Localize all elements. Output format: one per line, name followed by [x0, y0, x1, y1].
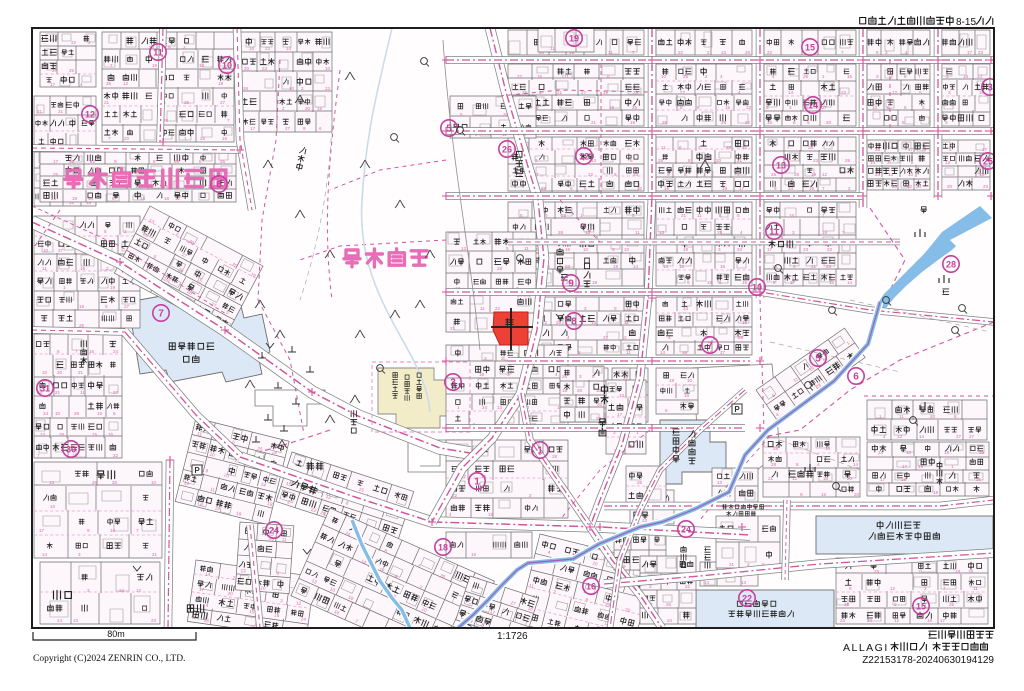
svg-text:12: 12 [897, 434, 903, 439]
svg-text:19: 19 [707, 280, 713, 285]
svg-text:3: 3 [579, 374, 582, 379]
svg-text:21: 21 [78, 370, 84, 375]
svg-text:24: 24 [681, 524, 691, 534]
svg-text:16: 16 [789, 213, 795, 218]
svg-text:20: 20 [597, 402, 603, 407]
svg-text:25: 25 [53, 172, 59, 177]
svg-text:4: 4 [883, 434, 886, 439]
svg-text:1: 1 [457, 405, 460, 410]
svg-text:26: 26 [562, 374, 568, 379]
svg-text:19: 19 [488, 512, 494, 517]
svg-text:21: 21 [737, 158, 743, 163]
svg-text:9: 9 [568, 278, 574, 289]
svg-text:3: 3 [507, 372, 510, 377]
svg-text:16: 16 [249, 46, 255, 51]
svg-text:1: 1 [63, 285, 66, 290]
svg-text:14: 14 [704, 580, 710, 585]
svg-text:22: 22 [588, 172, 594, 177]
svg-text:25: 25 [874, 569, 880, 574]
svg-text:24: 24 [878, 450, 884, 455]
svg-text:8: 8 [592, 374, 595, 379]
svg-text:10: 10 [43, 248, 49, 253]
svg-text:22: 22 [113, 453, 119, 458]
svg-text:15: 15 [725, 105, 731, 110]
svg-text:3: 3 [183, 45, 186, 50]
svg-text:8: 8 [614, 172, 617, 177]
svg-text:26: 26 [59, 432, 65, 437]
svg-text:13: 13 [49, 480, 55, 485]
svg-text:8: 8 [904, 74, 907, 79]
svg-text:9: 9 [667, 172, 670, 177]
svg-text:9: 9 [774, 186, 777, 191]
svg-text:2: 2 [705, 74, 708, 79]
svg-text:10: 10 [289, 86, 295, 91]
svg-text:80m: 80m [107, 629, 125, 639]
svg-text:3: 3 [87, 588, 90, 593]
svg-text:14: 14 [870, 160, 876, 165]
svg-text:28: 28 [721, 120, 727, 125]
svg-text:13: 13 [741, 580, 747, 585]
svg-text:16: 16 [976, 477, 982, 482]
svg-text:17: 17 [940, 618, 946, 623]
svg-text:6: 6 [904, 105, 907, 110]
svg-text:13: 13 [199, 63, 205, 68]
svg-text:28: 28 [174, 159, 180, 164]
svg-text:1:1726: 1:1726 [497, 631, 528, 642]
svg-text:17: 17 [739, 186, 745, 191]
svg-text:5: 5 [446, 123, 452, 134]
svg-text:3: 3 [792, 230, 795, 235]
svg-text:26: 26 [243, 86, 249, 91]
svg-text:15: 15 [97, 411, 103, 416]
svg-text:16: 16 [682, 350, 688, 355]
svg-text:21: 21 [104, 100, 110, 105]
svg-text:14: 14 [57, 618, 63, 623]
svg-text:14: 14 [788, 90, 794, 95]
svg-text:2: 2 [747, 562, 750, 567]
svg-text:6: 6 [607, 74, 610, 79]
svg-text:12: 12 [579, 151, 589, 161]
svg-text:10: 10 [260, 586, 266, 591]
svg-text:27: 27 [113, 390, 119, 395]
svg-text:15: 15 [979, 450, 985, 455]
svg-text:22: 22 [742, 593, 752, 603]
svg-text:24: 24 [840, 618, 846, 623]
svg-text:26: 26 [803, 74, 809, 79]
svg-text:6: 6 [539, 90, 542, 95]
svg-text:11: 11 [480, 306, 485, 311]
svg-text:P: P [194, 466, 200, 475]
svg-text:28: 28 [773, 446, 779, 451]
svg-text:17: 17 [908, 147, 914, 152]
svg-text:16: 16 [720, 264, 726, 269]
svg-text:1: 1 [822, 213, 825, 218]
svg-text:24: 24 [683, 306, 689, 311]
svg-text:19: 19 [955, 569, 961, 574]
svg-text:19: 19 [811, 172, 817, 177]
svg-text:1: 1 [703, 172, 706, 177]
svg-text:7: 7 [108, 136, 111, 141]
svg-text:23: 23 [561, 213, 567, 218]
svg-text:5: 5 [919, 90, 922, 95]
svg-text:10: 10 [325, 66, 331, 71]
svg-text:10: 10 [55, 411, 61, 416]
svg-text:19: 19 [918, 464, 924, 469]
svg-text:28: 28 [844, 602, 850, 607]
svg-text:3: 3 [484, 356, 487, 361]
svg-text:17: 17 [617, 412, 623, 417]
svg-text:4: 4 [567, 335, 570, 340]
svg-text:25: 25 [983, 156, 993, 166]
svg-text:24: 24 [788, 186, 794, 191]
svg-text:18: 18 [80, 266, 86, 271]
svg-text:23: 23 [983, 184, 989, 189]
svg-text:23: 23 [875, 172, 881, 177]
svg-text:25: 25 [220, 159, 226, 164]
svg-text:28: 28 [552, 454, 558, 459]
svg-text:6: 6 [773, 280, 776, 285]
svg-text:22: 22 [685, 584, 691, 589]
svg-text:10: 10 [661, 74, 667, 79]
svg-text:21: 21 [55, 390, 61, 395]
svg-text:2: 2 [922, 105, 925, 110]
svg-text:18: 18 [944, 450, 950, 455]
svg-text:17: 17 [53, 159, 59, 164]
svg-text:28: 28 [658, 158, 664, 163]
svg-text:8: 8 [57, 349, 60, 354]
svg-text:28: 28 [92, 480, 98, 485]
svg-text:25: 25 [633, 172, 639, 177]
svg-text:15: 15 [679, 264, 685, 269]
svg-text:22: 22 [637, 186, 643, 191]
svg-text:13: 13 [776, 160, 786, 170]
svg-text:6: 6 [665, 408, 668, 413]
svg-text:27: 27 [124, 304, 130, 309]
svg-text:13: 13 [945, 160, 951, 165]
svg-text:22: 22 [495, 306, 501, 311]
svg-text:24: 24 [667, 618, 673, 623]
svg-text:22: 22 [71, 40, 77, 45]
svg-text:6: 6 [697, 105, 700, 110]
svg-text:Z22153178-20240630194129: Z22153178-20240630194129 [862, 655, 994, 666]
svg-text:14: 14 [888, 172, 894, 177]
svg-text:19: 19 [613, 264, 619, 269]
svg-text:16: 16 [927, 618, 933, 623]
svg-text:27: 27 [220, 100, 226, 105]
svg-text:20: 20 [854, 492, 860, 497]
svg-text:3: 3 [945, 120, 948, 125]
svg-text:15: 15 [317, 106, 323, 111]
svg-text:21: 21 [681, 213, 687, 218]
svg-text:3: 3 [78, 552, 81, 557]
svg-text:11: 11 [550, 46, 555, 51]
svg-text:2: 2 [282, 106, 285, 111]
svg-text:12: 12 [894, 618, 900, 623]
svg-text:16: 16 [968, 569, 974, 574]
svg-text:25: 25 [556, 320, 562, 325]
svg-text:25: 25 [106, 81, 112, 86]
svg-text:8: 8 [719, 213, 722, 218]
svg-text:15: 15 [821, 492, 827, 497]
svg-text:3: 3 [793, 264, 796, 269]
svg-text:1: 1 [474, 476, 480, 487]
svg-text:23: 23 [803, 247, 809, 252]
svg-text:10: 10 [222, 60, 232, 70]
svg-text:14: 14 [663, 264, 669, 269]
svg-text:9: 9 [153, 159, 156, 164]
svg-text:8: 8 [680, 105, 683, 110]
svg-text:18: 18 [683, 247, 689, 252]
svg-text:11: 11 [635, 230, 640, 235]
svg-text:3: 3 [948, 90, 951, 95]
svg-text:19: 19 [569, 33, 579, 43]
svg-text:8: 8 [545, 213, 548, 218]
svg-text:7: 7 [227, 118, 230, 123]
svg-text:3: 3 [876, 74, 879, 79]
svg-text:16: 16 [108, 432, 114, 437]
svg-text:28: 28 [946, 259, 956, 269]
svg-text:12: 12 [892, 90, 898, 95]
svg-text:10: 10 [583, 247, 589, 252]
svg-text:19: 19 [218, 81, 224, 86]
svg-text:1: 1 [537, 445, 543, 456]
svg-text:23: 23 [826, 264, 832, 269]
svg-text:16: 16 [537, 74, 543, 79]
svg-text:17: 17 [790, 280, 796, 285]
svg-text:4: 4 [905, 50, 908, 55]
svg-text:20: 20 [577, 388, 583, 393]
svg-text:22: 22 [90, 159, 96, 164]
svg-text:8: 8 [199, 159, 202, 164]
svg-text:19: 19 [809, 186, 815, 191]
svg-text:18: 18 [164, 196, 170, 201]
svg-text:8: 8 [793, 120, 796, 125]
svg-text:24: 24 [916, 184, 922, 189]
svg-text:28: 28 [726, 145, 732, 150]
svg-text:24: 24 [43, 411, 49, 416]
svg-text:16: 16 [630, 120, 636, 125]
svg-text:11: 11 [282, 537, 288, 542]
svg-text:24: 24 [51, 196, 57, 201]
svg-text:8: 8 [104, 229, 107, 234]
svg-text:25: 25 [522, 90, 528, 95]
svg-text:2: 2 [106, 266, 109, 271]
svg-text:25: 25 [633, 90, 639, 95]
svg-text:2: 2 [501, 356, 504, 361]
svg-text:12: 12 [907, 184, 913, 189]
svg-text:25: 25 [683, 74, 689, 79]
svg-text:14: 14 [853, 462, 859, 467]
svg-text:15: 15 [562, 388, 568, 393]
svg-text:25: 25 [632, 105, 638, 110]
svg-text:2: 2 [848, 186, 851, 191]
svg-text:26: 26 [666, 602, 672, 607]
svg-text:23: 23 [978, 50, 984, 55]
svg-text:10: 10 [752, 282, 762, 292]
svg-text:25: 25 [200, 136, 206, 141]
svg-text:P: P [734, 405, 740, 414]
svg-text:12: 12 [123, 81, 129, 86]
svg-text:23: 23 [325, 86, 331, 91]
svg-text:7: 7 [136, 528, 139, 533]
svg-text:10: 10 [619, 393, 625, 398]
svg-text:11: 11 [661, 145, 666, 150]
svg-text:11: 11 [769, 226, 779, 236]
svg-text:24: 24 [119, 588, 125, 593]
svg-text:7: 7 [842, 230, 845, 235]
svg-text:20: 20 [930, 414, 936, 419]
svg-text:15: 15 [767, 120, 773, 125]
svg-text:7: 7 [707, 340, 713, 351]
svg-text:21: 21 [591, 120, 597, 125]
svg-text:30: 30 [66, 444, 76, 454]
svg-text:2: 2 [88, 40, 91, 45]
svg-text:19: 19 [592, 280, 598, 285]
svg-text:12: 12 [175, 196, 181, 201]
svg-text:10: 10 [908, 172, 914, 177]
svg-text:5: 5 [815, 353, 821, 364]
svg-text:3: 3 [718, 247, 721, 252]
svg-text:16: 16 [825, 446, 831, 451]
svg-text:15: 15 [805, 42, 815, 52]
svg-text:4: 4 [740, 230, 743, 235]
svg-text:1: 1 [879, 414, 882, 419]
svg-text:14: 14 [660, 350, 666, 355]
svg-text:21: 21 [450, 326, 456, 331]
svg-text:26: 26 [502, 144, 512, 154]
svg-text:9: 9 [168, 45, 171, 50]
svg-text:27: 27 [517, 74, 523, 79]
svg-text:27: 27 [285, 126, 291, 131]
svg-text:2: 2 [707, 50, 710, 55]
svg-text:21: 21 [37, 109, 43, 114]
svg-text:3: 3 [885, 50, 888, 55]
svg-text:12: 12 [626, 306, 632, 311]
svg-text:28: 28 [808, 145, 814, 150]
svg-text:11: 11 [80, 390, 85, 395]
svg-text:1: 1 [951, 464, 954, 469]
svg-text:14: 14 [633, 264, 639, 269]
svg-text:19: 19 [479, 372, 485, 377]
svg-text:22: 22 [678, 50, 684, 55]
svg-text:14: 14 [847, 280, 853, 285]
svg-text:17: 17 [39, 528, 45, 533]
svg-text:4: 4 [738, 90, 741, 95]
svg-text:14: 14 [808, 100, 818, 110]
svg-text:8: 8 [684, 172, 687, 177]
svg-text:6: 6 [216, 179, 222, 190]
svg-text:6: 6 [112, 196, 115, 201]
svg-text:20: 20 [826, 120, 832, 125]
svg-text:16: 16 [89, 349, 95, 354]
svg-text:27: 27 [956, 434, 962, 439]
svg-text:11: 11 [624, 320, 629, 325]
svg-text:19: 19 [933, 490, 939, 495]
svg-text:24: 24 [269, 525, 279, 535]
svg-text:1: 1 [918, 569, 921, 574]
svg-text:15: 15 [979, 172, 985, 177]
svg-text:21: 21 [811, 264, 817, 269]
svg-text:23: 23 [151, 618, 157, 623]
svg-text:26: 26 [875, 147, 881, 152]
svg-text:ALLAGI: ALLAGI [843, 642, 889, 654]
svg-text:5: 5 [506, 246, 509, 251]
svg-text:15: 15 [92, 432, 98, 437]
svg-text:4: 4 [720, 74, 723, 79]
svg-text:1: 1 [580, 213, 583, 218]
svg-text:21: 21 [557, 90, 563, 95]
svg-text:3: 3 [612, 247, 615, 252]
svg-text:5: 5 [737, 213, 740, 218]
svg-text:7: 7 [737, 172, 740, 177]
svg-text:27: 27 [58, 248, 64, 253]
svg-text:16: 16 [140, 196, 146, 201]
svg-text:26: 26 [637, 480, 643, 485]
svg-text:10: 10 [687, 378, 693, 383]
svg-text:26: 26 [771, 172, 777, 177]
svg-text:28: 28 [662, 120, 668, 125]
svg-text:13: 13 [497, 405, 503, 410]
svg-text:4: 4 [772, 74, 775, 79]
svg-text:14: 14 [88, 196, 94, 201]
svg-text:20: 20 [112, 480, 118, 485]
svg-text:9: 9 [849, 586, 852, 591]
svg-text:18: 18 [438, 542, 448, 552]
svg-text:18: 18 [963, 74, 969, 79]
svg-text:28: 28 [497, 266, 503, 271]
svg-text:22: 22 [841, 90, 847, 95]
svg-text:28: 28 [745, 50, 751, 55]
svg-text:14: 14 [286, 46, 292, 51]
svg-text:1: 1 [822, 74, 825, 79]
svg-text:19: 19 [742, 320, 748, 325]
svg-text:10: 10 [596, 388, 602, 393]
svg-text:7: 7 [943, 586, 946, 591]
svg-text:6: 6 [113, 411, 116, 416]
svg-text:5: 5 [570, 186, 573, 191]
svg-text:7: 7 [918, 74, 921, 79]
svg-text:16: 16 [110, 528, 116, 533]
svg-text:25: 25 [794, 172, 800, 177]
svg-text:24: 24 [867, 618, 873, 623]
svg-text:14: 14 [42, 552, 48, 557]
svg-text:4: 4 [817, 462, 820, 467]
svg-text:18: 18 [609, 105, 615, 110]
svg-text:5: 5 [807, 120, 810, 125]
svg-text:2: 2 [624, 335, 627, 340]
svg-text:27: 27 [720, 350, 726, 355]
svg-text:2: 2 [124, 229, 127, 234]
svg-text:4: 4 [80, 82, 83, 87]
svg-text:27: 27 [969, 434, 975, 439]
svg-text:20: 20 [124, 136, 130, 141]
svg-text:4: 4 [555, 372, 558, 377]
svg-text:12: 12 [85, 109, 95, 119]
svg-text:16: 16 [565, 247, 571, 252]
svg-text:16: 16 [664, 186, 670, 191]
svg-text:5: 5 [584, 186, 587, 191]
svg-text:11: 11 [153, 47, 163, 57]
svg-text:7: 7 [822, 186, 825, 191]
svg-text:2: 2 [894, 602, 897, 607]
svg-text:8: 8 [688, 158, 691, 163]
svg-text:18: 18 [901, 477, 907, 482]
svg-text:16: 16 [471, 552, 477, 557]
svg-text:5: 5 [630, 158, 633, 163]
svg-text:26: 26 [74, 411, 80, 416]
svg-text:15: 15 [152, 63, 158, 68]
svg-text:24: 24 [113, 349, 119, 354]
